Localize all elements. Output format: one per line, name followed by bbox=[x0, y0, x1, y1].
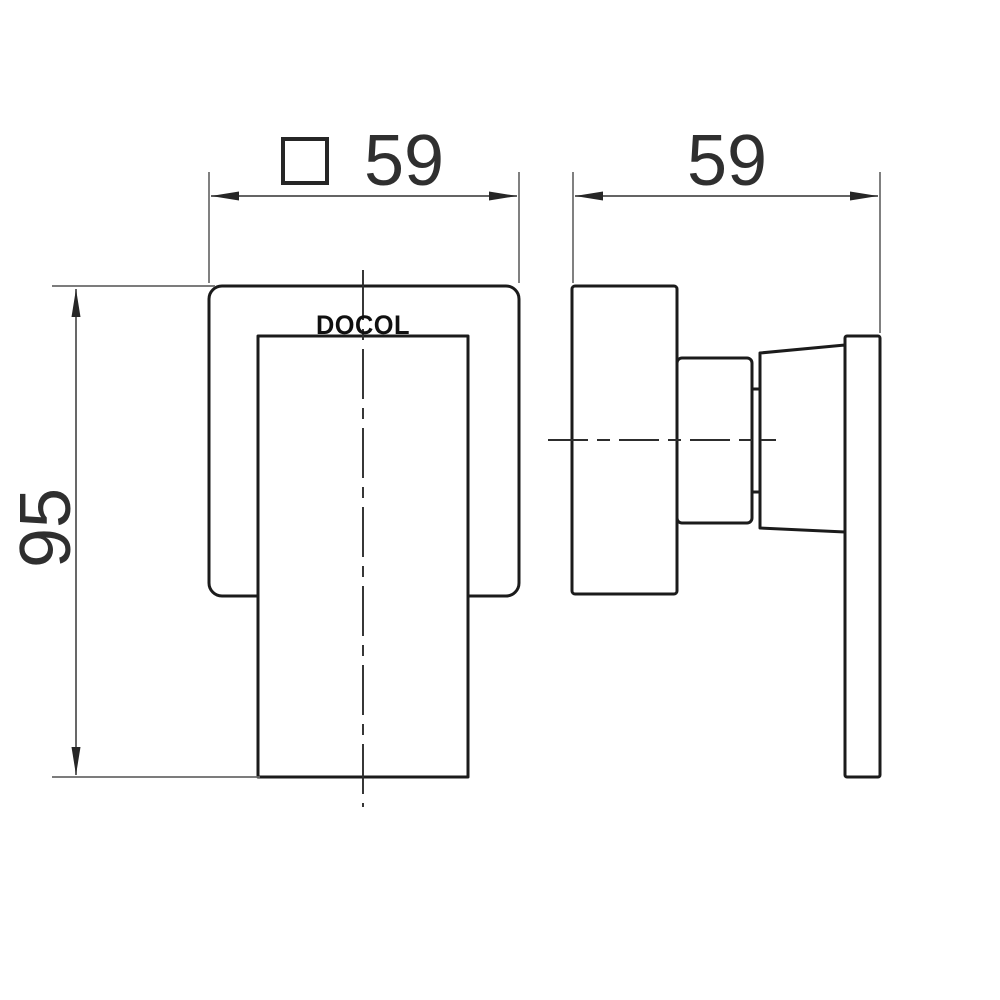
dim-front-width: 59 bbox=[209, 121, 519, 283]
dim-value-front-width: 59 bbox=[364, 121, 444, 201]
handle-cone-side bbox=[760, 345, 845, 532]
square-profile-symbol-icon bbox=[283, 139, 327, 183]
arrowhead-right-icon bbox=[489, 192, 517, 201]
handle-lever-side bbox=[845, 336, 880, 777]
dim-value-side-depth: 59 bbox=[687, 121, 767, 201]
drawing-canvas: DOCOL 59 bbox=[0, 0, 1000, 1000]
arrowhead-left-icon bbox=[575, 192, 603, 201]
dim-value-front-height: 95 bbox=[6, 488, 86, 568]
arrowhead-bottom-icon bbox=[72, 747, 81, 775]
arrowhead-right-icon bbox=[850, 192, 878, 201]
side-view bbox=[548, 286, 880, 777]
front-view: DOCOL bbox=[209, 270, 519, 807]
arrowhead-left-icon bbox=[211, 192, 239, 201]
technical-drawing: DOCOL 59 bbox=[0, 0, 1000, 1000]
brand-logo: DOCOL bbox=[316, 310, 410, 340]
arrowhead-top-icon bbox=[72, 289, 81, 317]
